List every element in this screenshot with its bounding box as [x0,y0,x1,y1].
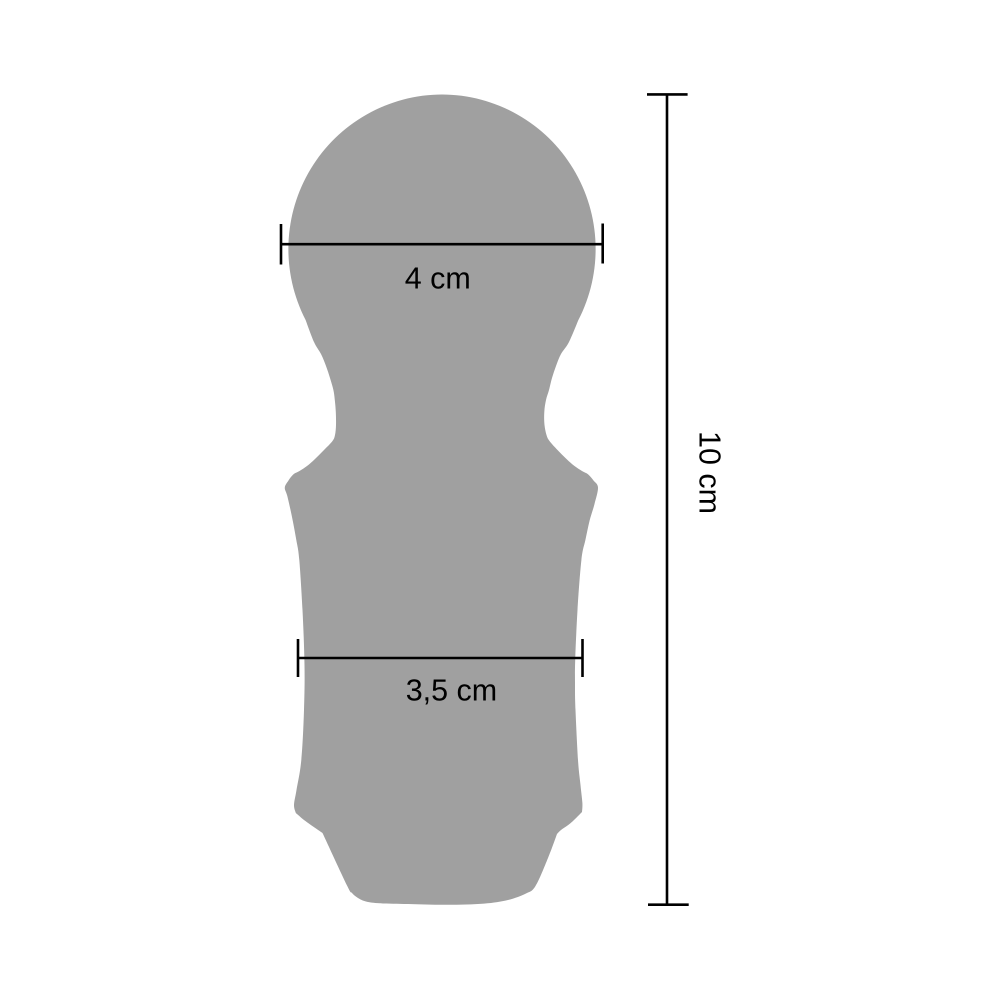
svg-text:3,5 cm: 3,5 cm [406,674,498,708]
svg-text:10 cm: 10 cm [692,431,726,514]
svg-text:4 cm: 4 cm [405,262,471,296]
